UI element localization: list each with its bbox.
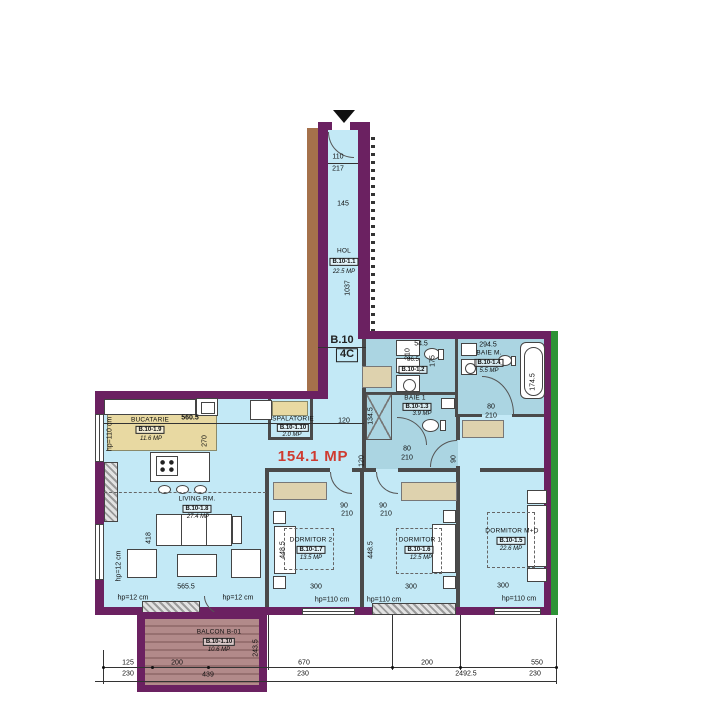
living-dorm2-wall <box>265 468 269 607</box>
wardrobe-dorm2 <box>273 482 327 500</box>
room-code-dorm1: B.10-1.6 <box>404 546 433 554</box>
bottom-pillar-hatch <box>372 603 456 615</box>
nightstand <box>273 576 286 589</box>
dim-dorm2-448: 448.5 <box>280 541 287 559</box>
dim-line <box>328 163 358 164</box>
room-code-dorm2: B.10-1.7 <box>296 546 325 554</box>
sink <box>441 398 455 409</box>
hall-wall-c <box>398 468 458 472</box>
dim-md-door-90: 90 <box>451 455 458 463</box>
kitchen-counter <box>104 399 196 415</box>
entrance-arrow-icon <box>333 110 355 123</box>
room-name-dorm1: DORMITOR 1 <box>399 538 442 545</box>
ext-line <box>268 615 269 670</box>
toilet-tank <box>438 349 444 360</box>
laundry-counter <box>272 401 308 416</box>
dim-dorm2-300: 300 <box>310 583 322 590</box>
room-area-dorm-md: 22.6 MP <box>500 546 522 552</box>
dim-hp12-b: hp=12 cm <box>223 594 254 601</box>
dim-hp110-c: hp=110 cm <box>502 595 536 602</box>
nightstand <box>527 568 547 582</box>
stove <box>156 456 178 476</box>
bedroom-md-window <box>494 608 541 615</box>
wardrobe-dorm1 <box>401 482 457 501</box>
hall-wardrobe <box>362 366 392 388</box>
bedroom2-window <box>302 608 355 615</box>
dim-balcony-243: 243.5 <box>253 639 260 657</box>
room-name-hol: HOL <box>337 249 351 256</box>
dim-hp12-left: hp=12 cm <box>116 551 123 582</box>
room-area-bucatarie: 11.6 MP <box>140 436 162 442</box>
dryer <box>396 375 420 392</box>
ext-line <box>460 615 461 670</box>
dim-dorm2-door-210: 210 <box>341 510 353 517</box>
dim-dot <box>207 666 210 669</box>
room-name-spalatorie: SPALATORIE <box>272 417 314 424</box>
dim-hp110-b: hp=110 cm <box>367 596 401 603</box>
ext-line <box>392 615 393 670</box>
sink <box>461 343 477 356</box>
dim-living-565: 565.5 <box>177 583 195 590</box>
dim-dorm1-door-90: 90 <box>379 502 387 509</box>
dim-dot <box>151 666 154 669</box>
nightstand <box>443 510 456 523</box>
room-name-baie1: BAIE 1 <box>404 396 425 403</box>
room-area-dorm2: 13.5 MP <box>300 555 322 561</box>
dim-dorm-md-300: 300 <box>497 582 509 589</box>
hall-wall-b <box>352 468 376 472</box>
dim-entry-height: 217 <box>332 165 344 172</box>
ext-line <box>556 618 557 684</box>
dim-dorm1-448: 448.5 <box>368 541 375 559</box>
dim-row1-1: 200 <box>171 659 183 666</box>
dim-row1-0: 125 <box>122 659 134 666</box>
kitchen-window <box>95 414 104 462</box>
exterior-green-band <box>551 331 558 615</box>
room-name-dorm-md: DORMITOR M+D <box>485 529 538 536</box>
armchair <box>231 549 261 578</box>
hall-wall-d <box>480 468 544 472</box>
dim-row2-1: 439 <box>202 671 214 678</box>
room-code-baiem: B.10-1.4 <box>474 359 503 367</box>
room-area-spalatorie: 2.0 MP <box>282 432 301 438</box>
toilet <box>422 419 439 432</box>
dim-entry-width: 110 <box>332 153 343 160</box>
dim-dorm1-300: 300 <box>405 583 417 590</box>
dim-baiem-door-210: 210 <box>485 412 497 419</box>
room-area-balcon: 10.6 MP <box>208 647 230 653</box>
dim-wc-175: 175 <box>430 355 437 367</box>
dim-row2-2: 230 <box>297 670 309 677</box>
dim-baie1-door-80: 80 <box>403 445 411 452</box>
dim-row1-3: 200 <box>421 659 433 666</box>
dim-hp110-left: hp=110 cm <box>107 417 114 451</box>
dim-living-418: 418 <box>146 532 153 544</box>
baiem-bottom-wall-b <box>512 414 544 417</box>
room-code-dorm-md: B.10-1.5 <box>496 537 525 545</box>
dorm2-dorm1-wall <box>360 468 364 607</box>
nightstand <box>527 490 547 504</box>
dim-baiem-door-80: 80 <box>487 403 495 410</box>
dim-dot <box>102 666 105 669</box>
room-area-dorm1: 12.5 MP <box>410 555 432 561</box>
dim-dorm1-door-210: 210 <box>380 510 392 517</box>
hall-wall-a <box>265 468 330 472</box>
dim-baie1-door-210: 210 <box>401 454 413 461</box>
nightstand <box>443 576 456 589</box>
insulation-hatch <box>371 132 375 332</box>
room-area-baiem: 5.5 MP <box>479 368 498 374</box>
room-code-hol: B.10-1.1 <box>329 258 358 266</box>
room-code-wc2: B.10-1.2 <box>398 366 427 374</box>
room-name-baiem: BAIE M. <box>476 351 501 358</box>
dim-120-h: 120 <box>338 417 350 424</box>
room-area-hol: 22.5 MP <box>333 269 355 275</box>
dim-dot <box>391 666 394 669</box>
unit-type-label: 4C <box>336 348 358 362</box>
living-window <box>95 524 104 580</box>
dim-hall-145: 145 <box>337 200 349 207</box>
room-name-balcon: BALCON B-01 <box>197 630 241 637</box>
dim-120-v: 120 <box>359 455 366 467</box>
room-name-dorm2: DORMITOR 2 <box>290 538 333 545</box>
entry-wall-left <box>318 122 332 130</box>
dim-wc-86: 86.5 <box>407 357 419 363</box>
baiem-left-wall <box>455 339 458 417</box>
dim-baiem-294: 294.5 <box>479 341 497 348</box>
toilet-tank <box>440 420 446 431</box>
entry-wall-right <box>350 122 370 130</box>
coffee-table <box>177 554 217 577</box>
toilet-tank <box>511 356 516 366</box>
dim-row2-3: 2492.5 <box>455 670 476 677</box>
room-code-balcon: B.10-1.10 <box>203 638 235 646</box>
kitchen-sink <box>196 398 218 416</box>
dim-hp110-a: hp=110 cm <box>315 596 349 603</box>
nightstand <box>273 511 286 524</box>
armchair <box>127 549 157 578</box>
dim-row2-4: 230 <box>529 670 541 677</box>
dim-dot <box>555 666 558 669</box>
wardrobe-dorm-md <box>462 420 504 438</box>
dim-line-row2 <box>95 681 556 682</box>
dim-tub-174: 174.5 <box>530 373 537 391</box>
corridor-left-wall <box>318 122 328 399</box>
unit-block-label: B.10 <box>330 335 353 347</box>
floor-plan: 110 217 145 HOL B.10-1.1 22.5 MP 1037 B.… <box>0 0 720 720</box>
zone-divider-dashed <box>104 492 266 493</box>
dorm1-md-wall-a <box>456 414 460 440</box>
corridor-right-wall <box>358 122 370 339</box>
exterior-brown-band <box>307 128 318 399</box>
dim-hp12-a: hp=12 cm <box>118 594 149 601</box>
room-name-living: LIVING RM. <box>178 497 215 504</box>
room-code-bucatarie: B.10-1.9 <box>135 426 164 434</box>
room-code-living: B.10-1.8 <box>182 505 211 513</box>
total-area-label: 154.1 MP <box>278 449 349 465</box>
dim-row1-4: 550 <box>531 659 543 666</box>
dim-row1-2: 670 <box>298 659 310 666</box>
dim-wc-54: 54.5 <box>414 340 428 347</box>
room-area-baie1: 3.9 MP <box>412 411 431 417</box>
dim-hall-length: 1037 <box>345 280 352 296</box>
dim-kitchen-560: 560.5 <box>181 414 199 421</box>
dim-row2-0: 230 <box>122 670 134 677</box>
dim-dorm2-door-90: 90 <box>340 502 348 509</box>
dim-kitchen-270: 270 <box>202 435 209 447</box>
dim-dot <box>459 666 462 669</box>
room-area-living: 27.4 MP <box>187 514 209 520</box>
room-name-bucatarie: BUCATARIE <box>131 418 169 425</box>
sofa-arm <box>232 516 242 544</box>
top-wall-right-section <box>358 331 551 339</box>
fridge <box>250 400 272 420</box>
dim-line-row1 <box>104 667 556 668</box>
dim-closet-134: 134.5 <box>368 407 375 425</box>
